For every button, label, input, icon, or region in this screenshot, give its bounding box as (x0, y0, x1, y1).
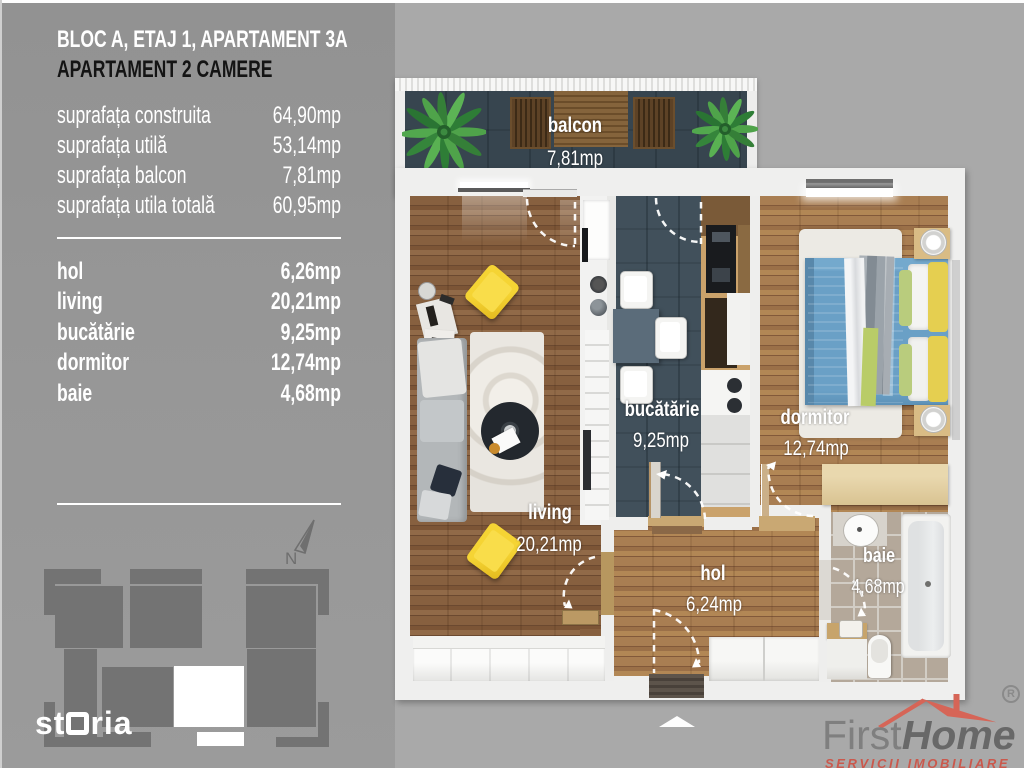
svg-text:N: N (285, 549, 297, 567)
